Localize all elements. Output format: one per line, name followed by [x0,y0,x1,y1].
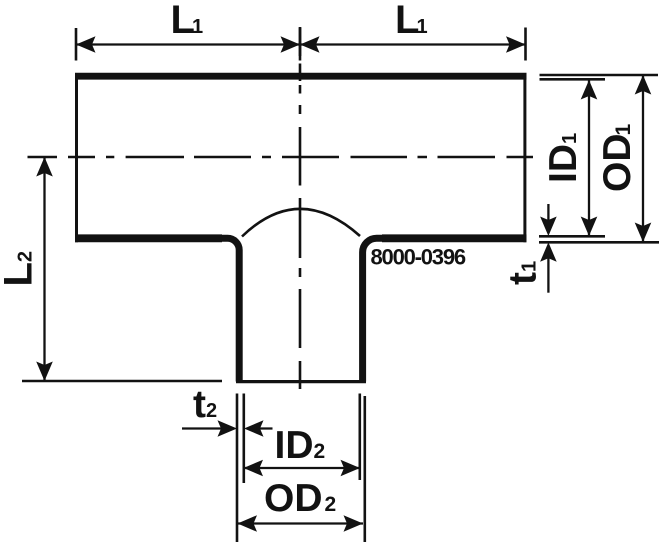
svg-text:8000-0396: 8000-0396 [371,245,466,270]
svg-text:OD1: OD1 [596,124,639,193]
